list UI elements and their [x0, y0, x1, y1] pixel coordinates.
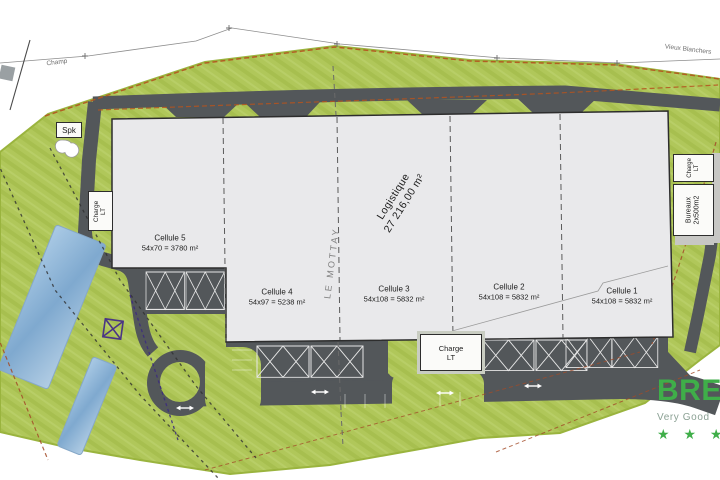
- charge-west-line1: Charge: [93, 200, 100, 221]
- cell-5-dims: 54x70 = 3780 m²: [142, 243, 199, 252]
- sprinkler-label: Spk: [56, 122, 82, 138]
- cell-1-dims: 54x108 = 5832 m²: [592, 296, 653, 305]
- cell-2-name: Cellule 2: [479, 283, 540, 293]
- cell-label-1: Cellule 1 54x108 = 5832 m²: [592, 287, 653, 306]
- charge-south-line2: LT: [439, 353, 464, 362]
- cell-3-dims: 54x108 = 5832 m²: [364, 294, 425, 303]
- charge-lt-box-west: Charge LT: [88, 191, 113, 231]
- cell-3-name: Cellule 3: [364, 285, 425, 295]
- cell-5-name: Cellule 5: [142, 234, 199, 244]
- bureaux-box: Bureaux 2x500m2: [673, 184, 714, 236]
- site-plan-drawing: [0, 0, 720, 480]
- breeam-logo: BREEAM: [657, 376, 720, 406]
- charge-east-line1: Charge: [687, 158, 694, 178]
- cell-label-5: Cellule 5 54x70 = 3780 m²: [142, 234, 199, 253]
- cell-label-2: Cellule 2 54x108 = 5832 m²: [479, 283, 540, 302]
- annex-pad-south: [675, 236, 714, 245]
- cell-1-name: Cellule 1: [592, 287, 653, 297]
- cell-2-dims: 54x108 = 5832 m²: [479, 292, 540, 301]
- charge-east-line2: LT: [694, 158, 701, 178]
- breeam-badge: BREEAM Very Good ★ ★ ★: [657, 376, 720, 443]
- cell-4-dims: 54x97 = 5238 m²: [249, 297, 306, 306]
- bureaux-line1: Bureaux: [685, 196, 693, 225]
- cell-4-name: Cellule 4: [249, 288, 306, 298]
- bureaux-line2: 2x500m2: [693, 196, 701, 225]
- cell-label-4: Cellule 4 54x97 = 5238 m²: [249, 288, 306, 307]
- site-plan-canvas: Champ Vieux Blanchers LE MOTTAY Logistiq…: [0, 0, 720, 480]
- charge-lt-box-south: Charge LT: [420, 334, 482, 371]
- breeam-rating: Very Good: [657, 412, 720, 423]
- lane-stub: [0, 65, 15, 82]
- charge-west-line2: LT: [100, 200, 107, 221]
- charge-lt-box-east: Charge LT: [673, 154, 714, 182]
- turning-circle-island: [160, 362, 200, 402]
- breeam-stars-icon: ★ ★ ★: [657, 426, 720, 443]
- green-island-west: [205, 347, 261, 417]
- charge-south-line1: Charge: [439, 344, 464, 353]
- cell-label-3: Cellule 3 54x108 = 5832 m²: [364, 285, 425, 304]
